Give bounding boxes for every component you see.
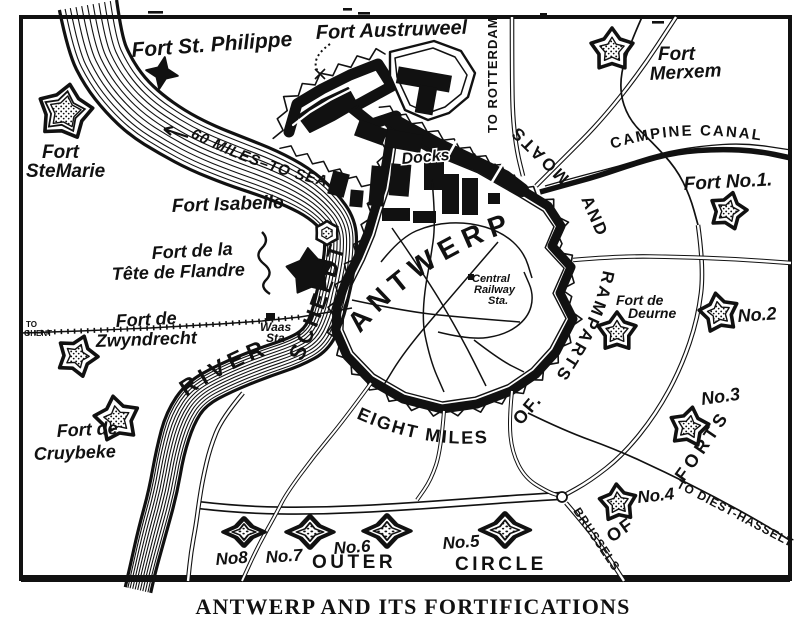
- svg-text:No.2: No.2: [737, 303, 777, 326]
- svg-text:Fort de: Fort de: [56, 418, 118, 441]
- svg-text:TO: TO: [26, 320, 37, 329]
- svg-text:No.7: No.7: [265, 545, 305, 567]
- svg-text:Zwyndrecht: Zwyndrecht: [94, 327, 198, 351]
- svg-text:Deurne: Deurne: [628, 305, 676, 321]
- svg-text:ANTWERP AND ITS FORTIFICATIONS: ANTWERP AND ITS FORTIFICATIONS: [195, 594, 630, 619]
- svg-text:Fort Isabelle: Fort Isabelle: [171, 192, 284, 217]
- svg-text:No8: No8: [215, 548, 249, 569]
- svg-text:GHENT: GHENT: [24, 329, 52, 338]
- svg-text:CIRCLE: CIRCLE: [455, 554, 547, 575]
- svg-text:No.5: No.5: [442, 531, 481, 553]
- svg-text:Sta: Sta: [266, 331, 285, 345]
- svg-text:Fort: Fort: [42, 142, 80, 163]
- svg-text:Cruybeke: Cruybeke: [33, 441, 116, 464]
- svg-text:TO ROTTERDAM: TO ROTTERDAM: [485, 16, 500, 133]
- svg-text:OUTER: OUTER: [312, 552, 396, 573]
- svg-text:Sta.: Sta.: [488, 295, 508, 307]
- svg-text:Merxem: Merxem: [649, 60, 722, 85]
- svg-text:SteMarie: SteMarie: [26, 161, 106, 182]
- svg-text:No.4: No.4: [636, 484, 675, 507]
